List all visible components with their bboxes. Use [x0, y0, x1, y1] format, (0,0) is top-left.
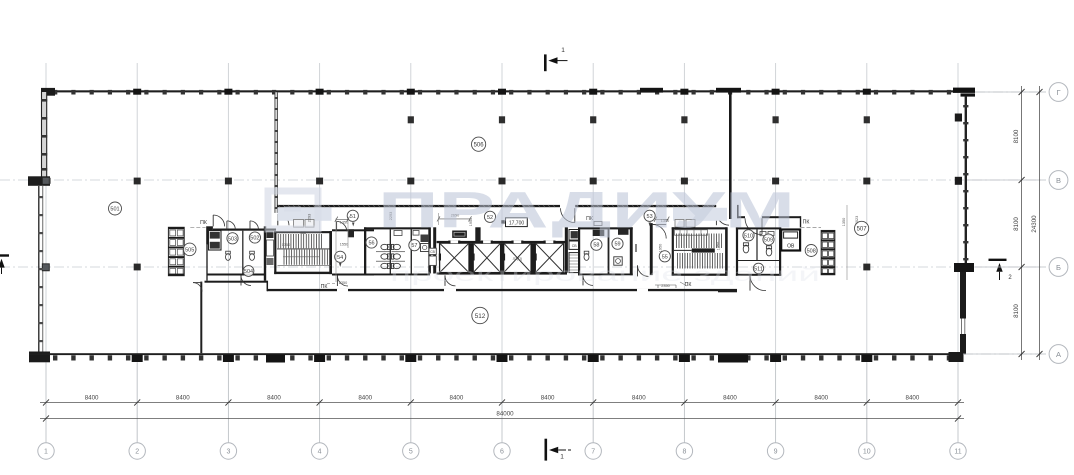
svg-text:57: 57 — [411, 243, 417, 249]
svg-text:501: 501 — [110, 206, 119, 212]
svg-text:6: 6 — [500, 449, 504, 456]
svg-text:24300: 24300 — [1031, 215, 1038, 233]
svg-text:8400: 8400 — [267, 395, 281, 402]
svg-text:55: 55 — [662, 254, 668, 260]
svg-text:4: 4 — [318, 449, 322, 456]
svg-text:8400: 8400 — [906, 395, 920, 402]
svg-text:1: 1 — [560, 454, 564, 461]
svg-text:3: 3 — [226, 449, 230, 456]
svg-text:10: 10 — [863, 449, 871, 456]
svg-text:ПК: ПК — [200, 220, 207, 226]
svg-text:8: 8 — [682, 449, 686, 456]
svg-text:5: 5 — [409, 449, 413, 456]
svg-text:56: 56 — [368, 240, 374, 246]
svg-text:508: 508 — [807, 248, 816, 254]
svg-text:8400: 8400 — [723, 395, 737, 402]
svg-text:51: 51 — [350, 214, 356, 220]
svg-text:7: 7 — [591, 449, 595, 456]
svg-text:8400: 8400 — [541, 395, 555, 402]
svg-text:59: 59 — [614, 242, 620, 248]
svg-text:1550: 1550 — [340, 243, 348, 247]
svg-text:1950: 1950 — [659, 244, 663, 252]
svg-text:8100: 8100 — [1013, 304, 1020, 318]
svg-text:СВ: СВ — [430, 250, 435, 254]
svg-text:54: 54 — [337, 255, 343, 261]
svg-text:512: 512 — [475, 313, 486, 320]
svg-text:ОВ: ОВ — [787, 243, 795, 249]
svg-text:8400: 8400 — [632, 395, 646, 402]
svg-text:2293: 2293 — [308, 214, 312, 222]
svg-text:8400: 8400 — [85, 395, 99, 402]
svg-text:ПК: ПК — [321, 284, 328, 290]
svg-text:СВ: СВ — [572, 244, 578, 248]
svg-text:1: 1 — [561, 47, 565, 54]
svg-text:8400: 8400 — [450, 395, 464, 402]
svg-text:8400: 8400 — [358, 395, 372, 402]
svg-text:1350: 1350 — [282, 243, 290, 247]
svg-text:А: А — [1056, 350, 1061, 359]
svg-text:2350: 2350 — [339, 281, 347, 285]
svg-text:1350: 1350 — [717, 242, 721, 250]
svg-text:8100: 8100 — [1013, 129, 1020, 143]
svg-text:11: 11 — [954, 449, 961, 456]
svg-text:503: 503 — [228, 236, 237, 242]
svg-text:507: 507 — [857, 227, 868, 233]
svg-text:504: 504 — [244, 269, 253, 275]
svg-text:505: 505 — [185, 247, 194, 253]
svg-text:ПК: ПК — [803, 219, 810, 225]
svg-text:1: 1 — [44, 449, 48, 456]
svg-text:ПРАДИУМ: ПРАДИУМ — [378, 182, 795, 239]
svg-text:2: 2 — [135, 449, 139, 456]
svg-text:ЛЗ(П): ЛЗ(П) — [513, 257, 523, 261]
svg-text:8400: 8400 — [176, 395, 190, 402]
svg-text:1350: 1350 — [842, 218, 846, 226]
svg-text:58: 58 — [593, 243, 599, 249]
svg-text:Б: Б — [1056, 263, 1061, 272]
svg-text:В: В — [1056, 176, 1061, 185]
svg-text:9: 9 — [774, 449, 778, 456]
svg-text:84000: 84000 — [496, 411, 514, 418]
svg-text:проектирование зданий: проектирование зданий — [390, 265, 820, 286]
svg-text:502: 502 — [250, 235, 259, 241]
svg-text:506: 506 — [474, 142, 485, 148]
svg-text:Г: Г — [1056, 88, 1060, 97]
svg-text:8400: 8400 — [814, 395, 828, 402]
svg-text:8100: 8100 — [1013, 217, 1020, 231]
